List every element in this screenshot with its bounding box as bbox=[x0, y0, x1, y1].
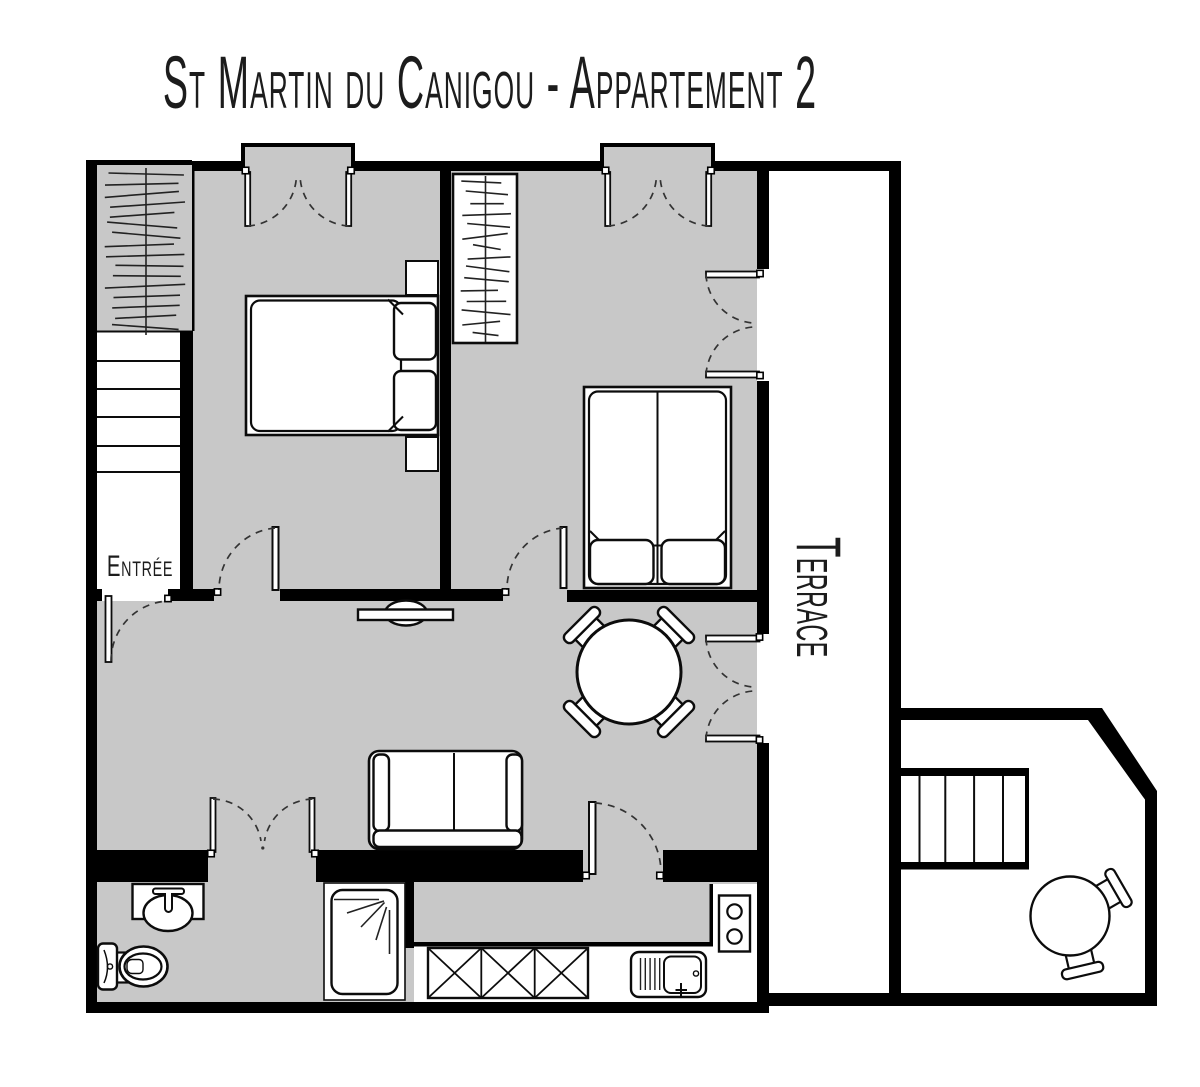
svg-text:Terrace: Terrace bbox=[783, 537, 854, 658]
svg-text:Entrée: Entrée bbox=[107, 550, 173, 583]
svg-text:St Martin du Canigou - Apparte: St Martin du Canigou - Appartement 2 bbox=[163, 42, 817, 124]
